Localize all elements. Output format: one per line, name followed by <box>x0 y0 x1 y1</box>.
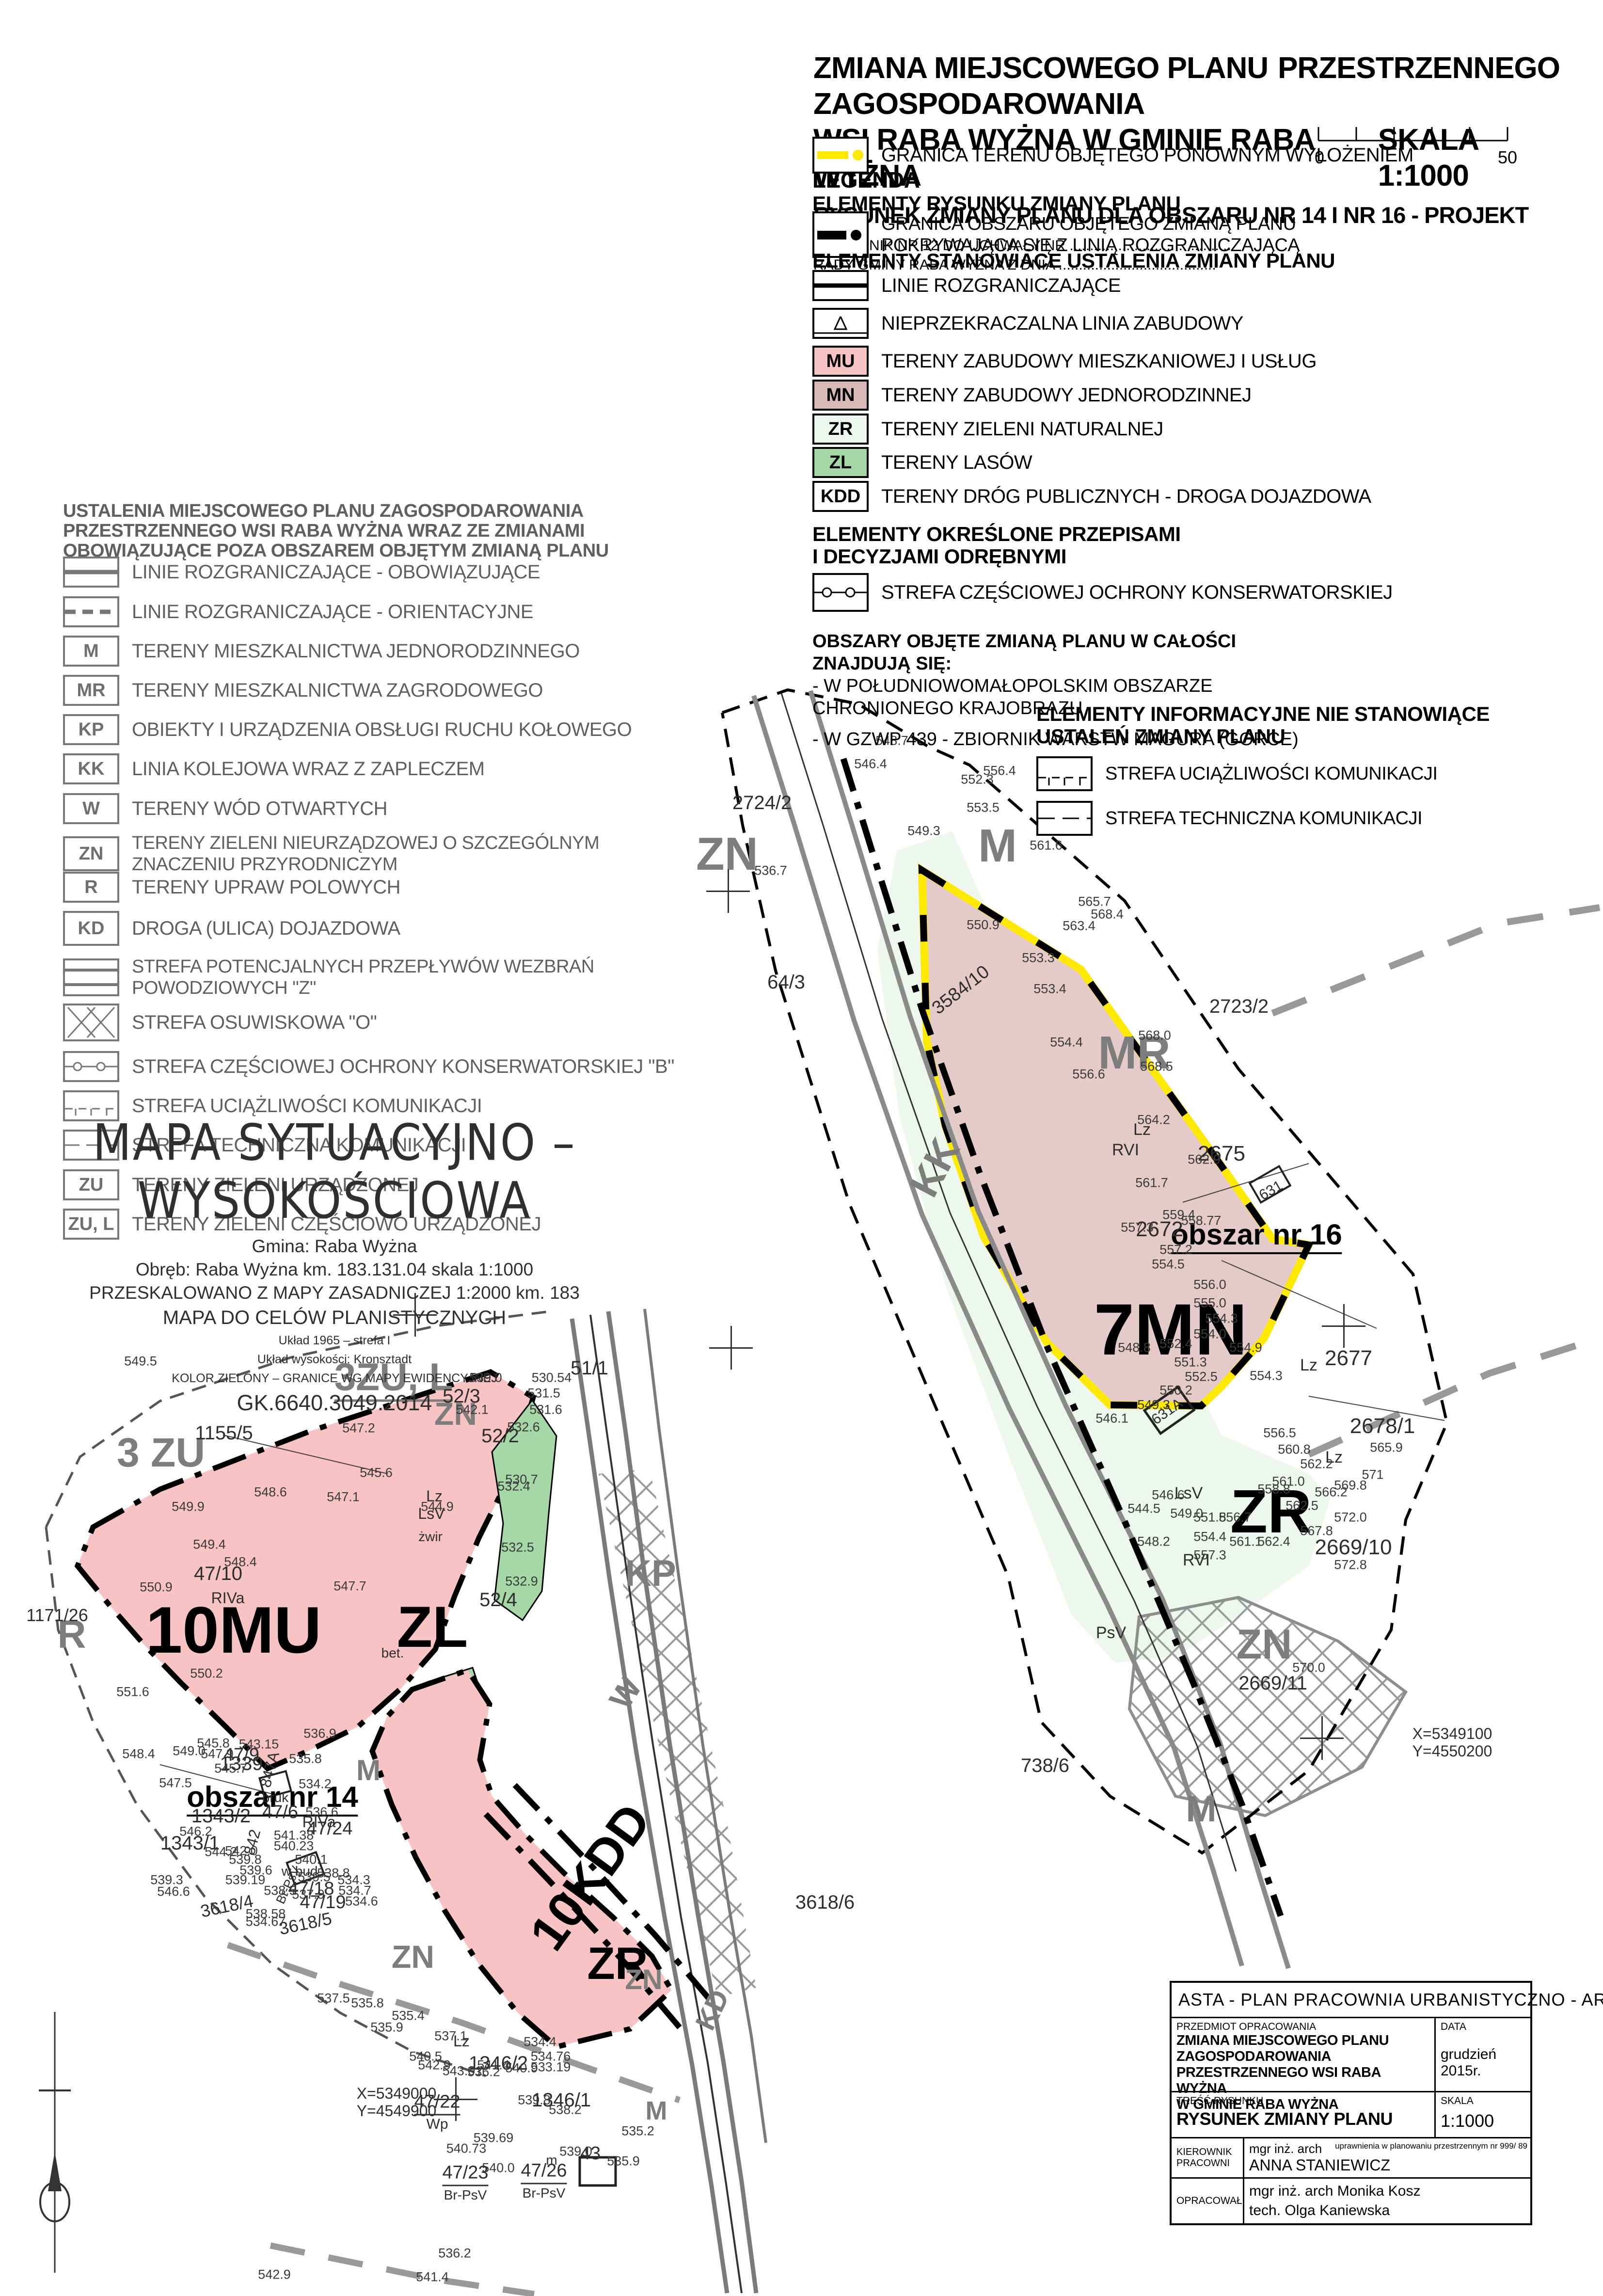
map-note-line: MAPA DO CELÓW PLANISTYCZNYCH <box>29 1307 640 1329</box>
legend-label-line: POWODZIOWYCH "Z" <box>132 977 594 999</box>
author-name-2: tech. Olga Kaniewska <box>1249 2201 1420 2220</box>
zl-swatch: ZL <box>812 447 869 478</box>
legend-label: STREFA OSUWISKOWA "O" <box>132 1012 377 1034</box>
legend-label: TERENY ZIELENI NIEURZĄDZOWEJ O SZCZEGÓLN… <box>132 832 599 875</box>
w-swatch: W <box>63 793 119 824</box>
legend-section-4: ELEMENTY INFORMACYJNE NIE STANOWIĄCE UST… <box>1036 703 1490 748</box>
legend-label: GRANICA TERENU OBJĘTEGO PONOWNYM WYŁOŻEN… <box>881 144 1413 166</box>
date-cell: DATA grudzień 2015r. <box>1436 2018 1527 2091</box>
legend-label: TERENY DRÓG PUBLICZNYCH - DROGA DOJAZDOW… <box>881 486 1371 508</box>
legend-label: TERENY WÓD OTWARTYCH <box>132 798 387 820</box>
manager-label: KIEROWNIK PRACOWNI <box>1172 2138 1244 2177</box>
legend-label: LINIE ROZGRANICZAJĄCE - OBOWIĄZUJĄCE <box>132 561 540 583</box>
zone-code: R <box>84 877 97 898</box>
cell-label: PRZEDMIOT OPRACOWANIA <box>1176 2021 1429 2033</box>
crosshatch-swatch <box>63 1004 119 1041</box>
title-block-manager-row: KIEROWNIK PRACOWNI mgr inż. arch ANNA ST… <box>1172 2137 1530 2177</box>
strefa-osuwiskowa-hatch <box>1129 1597 1406 1816</box>
kdd-swatch: KDD <box>812 481 869 512</box>
manager-name: ANNA STANIEWICZ <box>1249 2156 1525 2174</box>
legend-label: LINIE ROZGRANICZAJĄCE - ORIENTACYJNE <box>132 601 533 623</box>
map-note-title: MAPA SYTUACYJNO – WYSOKOŚCIOWA <box>29 1114 640 1230</box>
building <box>580 2157 616 2185</box>
thick-line-swatch <box>812 270 869 301</box>
legend-label: LINIA KOLEJOWA WRAZ Z ZAPLECZEM <box>132 758 485 780</box>
map-area-16 <box>722 690 1600 1968</box>
subject-line: ZMIANA MIEJSCOWEGO PLANU ZAGOSPODAROWANI… <box>1176 2033 1429 2065</box>
left-legend-header-line: USTALENIA MIEJSCOWEGO PLANU ZAGOSPODAROW… <box>63 501 609 521</box>
manager-cell: mgr inż. arch ANNA STANIEWICZ uprawnieni… <box>1244 2138 1530 2177</box>
zone-code: W <box>82 798 100 819</box>
note-line: OBSZARY OBJĘTE ZMIANĄ PLANU W CAŁOŚCI <box>812 630 1299 653</box>
legend-strefa-konserwatorska: STREFA CZĘŚCIOWEJ OCHRONY KONSERWATORSKI… <box>812 573 1393 612</box>
zone-code: KDD <box>821 486 860 507</box>
title-block-subject-row: PRZEDMIOT OPRACOWANIA ZMIANA MIEJSCOWEGO… <box>1172 2017 1530 2091</box>
map-note-line: Układ 1965 – strefa I <box>29 1334 640 1348</box>
cell-label: DATA <box>1441 2021 1522 2033</box>
legend-label: STREFA TECHNICZNA KOMUNIKACJI <box>1105 808 1422 829</box>
zone-code: ZN <box>79 844 104 864</box>
title-block-company-row: ASTA - PLAN PRACOWNIA URBANISTYCZNO - AR… <box>1172 1983 1530 2017</box>
map-source-note: MAPA SYTUACYJNO – WYSOKOŚCIOWA Gmina: Ra… <box>29 1120 640 1416</box>
legend-label: DROGA (ULICA) DOJAZDOWA <box>132 918 400 940</box>
legend-linia-zabudowy: NIEPRZEKRACZALNA LINIA ZABUDOWY <box>812 308 1243 339</box>
setback-line-swatch <box>812 308 869 339</box>
legend-section-line: I DECYZJAMI ODRĘBNYMI <box>812 545 1181 568</box>
parcel-line <box>160 1765 271 1794</box>
long-dash-swatch <box>1036 801 1093 836</box>
ll-kk: KK LINIA KOLEJOWA WRAZ Z ZAPLECZEM <box>63 753 485 784</box>
ll-w: W TERENY WÓD OTWARTYCH <box>63 793 387 824</box>
ll-kd: KD DROGA (ULICA) DOJAZDOWA <box>63 911 400 946</box>
legend-section-3: ELEMENTY OKREŚLONE PRZEPISAMI I DECYZJAM… <box>812 523 1181 568</box>
zn-swatch: ZN <box>63 836 119 871</box>
license-note: uprawnienia w planowaniu przestrzennym n… <box>1335 2141 1527 2151</box>
ll-zn: ZN TERENY ZIELENI NIEURZĄDZOWEJ O SZCZEG… <box>63 832 599 875</box>
legend-section-line: ELEMENTY INFORMACYJNE NIE STANOWIĄCE <box>1036 703 1490 725</box>
legend-label: OBIEKTY I URZĄDZENIA OBSŁUGI RUCHU KOŁOW… <box>132 719 632 741</box>
legend-label: STREFA POTENCJALNYCH PRZEPŁYWÓW WEZBRAŃ … <box>132 956 594 999</box>
legend-label: NIEPRZEKRACZALNA LINIA ZABUDOWY <box>881 313 1243 335</box>
ll-m: M TERENY MIESZKALNICTWA JEDNORODZINNEGO <box>63 636 580 667</box>
ll-r: R TERENY UPRAW POLOWYCH <box>63 872 400 903</box>
author-cell: mgr inż. arch Monika Kosz tech. Olga Kan… <box>1244 2179 1425 2223</box>
kd-swatch: KD <box>63 911 119 946</box>
legend-section-2: ELEMENTY STANOWIACE USTALENIA ZMIANY PLA… <box>812 249 1335 272</box>
zone-code: ZL <box>829 452 852 473</box>
title-block: ASTA - PLAN PRACOWNIA URBANISTYCZNO - AR… <box>1170 1981 1532 2225</box>
drawing-content-value: RYSUNEK ZMIANY PLANU <box>1176 2111 1429 2127</box>
title-block-author-row: OPRACOWAŁ: mgr inż. arch Monika Kosz tec… <box>1172 2177 1530 2223</box>
cell-label: TREŚĆ RYSUNKU <box>1176 2095 1429 2107</box>
legend-label: STREFA CZĘŚCIOWEJ OCHRONY KONSERWATORSKI… <box>881 582 1393 604</box>
legend-label-line: STREFA POTENCJALNYCH PRZEPŁYWÓW WEZBRAŃ <box>132 956 594 977</box>
legend-linie-rozgraniczajace: LINIE ROZGRANICZAJĄCE <box>812 270 1121 301</box>
subject-cell: PRZEDMIOT OPRACOWANIA ZMIANA MIEJSCOWEGO… <box>1172 2018 1436 2091</box>
map-note-ref-number: GK.6640.3049.2014 <box>29 1390 640 1416</box>
kp-swatch: KP <box>63 714 119 745</box>
zone-code: MU <box>826 351 855 372</box>
legend-label: TERENY ZABUDOWY MIESZKANIOWEJ I USŁUG <box>881 351 1317 372</box>
left-legend-header-line: PRZESTRZENNEGO WSI RABA WYŻNA WRAZ ZE ZM… <box>63 521 609 541</box>
legend-zr: ZR TERENY ZIELENI NATURALNEJ <box>812 414 1163 445</box>
mn-swatch: MN <box>812 380 869 411</box>
zone-code: ZR <box>828 419 853 440</box>
map-note-line: Układ wysokości: Kronsztadt <box>29 1353 640 1367</box>
strefa-techniczna-line-1 <box>1272 908 1600 1013</box>
strefa-techniczna-line-3 <box>270 2246 534 2294</box>
zone-code: M <box>83 641 99 662</box>
ticks-dash-swatch <box>1036 756 1093 791</box>
w-corridor-hatch <box>599 1469 756 1997</box>
double-line-swatch <box>63 958 119 996</box>
legend-label-line: GRANICA OBSZARU OBJĘTEGO ZMIANĄ PLANU <box>881 213 1300 235</box>
ll-konserw-b: STREFA CZĘŚCIOWEJ OCHRONY KONSERWATORSKI… <box>63 1051 674 1082</box>
drawing-content-cell: TREŚĆ RYSUNKU RYSUNEK ZMIANY PLANU <box>1172 2092 1436 2137</box>
plan-sheet: ZNMMRKK7MNobszar nr 16ZRZNMRVIRVILzLzLzL… <box>0 0 1603 2296</box>
building <box>260 1771 291 1798</box>
m-swatch: M <box>63 636 119 667</box>
legend-mu: MU TERENY ZABUDOWY MIESZKANIOWEJ I USŁUG <box>812 346 1317 377</box>
ll-linie-obowiazujace: LINIE ROZGRANICZAJĄCE - OBOWIĄZUJĄCE <box>63 557 540 588</box>
scale-end-label: 50 <box>1498 147 1517 168</box>
legend-zl: ZL TERENY LASÓW <box>812 447 1032 478</box>
map-note-line: Gmina: Raba Wyżna <box>29 1236 640 1257</box>
mu-swatch: MU <box>812 346 869 377</box>
map-area-14 <box>39 1309 766 2294</box>
zr-swatch: ZR <box>812 414 869 445</box>
map-note-line: Obręb: Raba Wyżna km. 183.131.04 skala 1… <box>29 1260 640 1280</box>
circle-line-swatch <box>812 573 869 612</box>
legend-section-line: USTALEŃ ZMIANY PLANU <box>1036 725 1490 748</box>
zone-code: MR <box>77 680 105 701</box>
legend-label: TERENY UPRAW POLOWYCH <box>132 877 400 898</box>
legend-label: TERENY MIESZKALNICTWA JEDNORODZINNEGO <box>132 640 580 662</box>
legend-mn: MN TERENY ZABUDOWY JEDNORODZINNEJ <box>812 380 1252 411</box>
map-note-line: PRZESKALOWANO Z MAPY ZASADNICZEJ 1:2000 … <box>29 1283 640 1303</box>
author-name-1: mgr inż. arch Monika Kosz <box>1249 2182 1420 2201</box>
circle-line-swatch-gray <box>63 1051 119 1082</box>
legend-section-line: ELEMENTY OKREŚLONE PRZEPISAMI <box>812 523 1181 545</box>
title-text: ZMIANA MIEJSCOWEGO PLANU ZAGOSPODAROWANI… <box>813 50 1278 122</box>
r-swatch: R <box>63 872 119 903</box>
scale-value: 1:1000 <box>1441 2111 1522 2131</box>
title-text-right: PRZESTRZENNEGO <box>1278 50 1560 122</box>
note-line: ZNAJDUJĄ SIĘ: <box>812 653 1299 675</box>
note-line: - W POŁUDNIOWOMAŁOPOLSKIM OBSZARZE <box>812 675 1299 697</box>
zone-code: KP <box>79 719 104 740</box>
legend-label: TERENY LASÓW <box>881 452 1032 474</box>
title-line-1: ZMIANA MIEJSCOWEGO PLANU ZAGOSPODAROWANI… <box>813 50 1560 122</box>
zone-code: KK <box>78 759 105 780</box>
left-legend-header: USTALENIA MIEJSCOWEGO PLANU ZAGOSPODAROW… <box>63 501 609 561</box>
legend-label: TERENY ZIELENI NATURALNEJ <box>881 418 1163 440</box>
date-value: grudzień 2015r. <box>1441 2046 1522 2079</box>
legend-strefa-uciazliwosci: STREFA UCIĄŻLIWOŚCI KOMUNIKACJI <box>1036 756 1437 791</box>
legend-title: LEGENDA <box>812 167 920 193</box>
gray-line-swatch <box>63 557 119 588</box>
ll-osuwisko: STREFA OSUWISKOWA "O" <box>63 1004 377 1041</box>
zone-code: KD <box>78 918 105 939</box>
legend-label: LINIE ROZGRANICZAJĄCE <box>881 275 1121 297</box>
legend-label: TERENY MIESZKALNICTWA ZAGRODOWEGO <box>132 680 543 702</box>
ll-kp: KP OBIEKTY I URZĄDZENIA OBSŁUGI RUCHU KO… <box>63 714 632 745</box>
legend-label: STREFA CZĘŚCIOWEJ OCHRONY KONSERWATORSKI… <box>132 1056 674 1078</box>
ll-linie-orientacyjne: LINIE ROZGRANICZAJĄCE - ORIENTACYJNE <box>63 596 533 627</box>
map-note-line: KOLOR ZIELONY – GRANICE WG MAPY EWIDENCY… <box>29 1371 640 1386</box>
building <box>1250 1166 1290 1203</box>
legend-label-line: TERENY ZIELENI NIEURZĄDZOWEJ O SZCZEGÓLN… <box>132 832 599 854</box>
legend-label: STREFA UCIĄŻLIWOŚCI KOMUNIKACJI <box>1105 764 1437 784</box>
building <box>287 1852 324 1885</box>
north-arrow <box>39 2012 71 2273</box>
ll-mr: MR TERENY MIESZKALNICTWA ZAGRODOWEGO <box>63 675 543 706</box>
gray-dashed-swatch <box>63 596 119 627</box>
company-name: ASTA - PLAN PRACOWNIA URBANISTYCZNO - AR… <box>1172 1983 1603 2017</box>
zone-code: MN <box>826 385 855 406</box>
ll-wezbrania: STREFA POTENCJALNYCH PRZEPŁYWÓW WEZBRAŃ … <box>63 956 594 999</box>
legend-label: TERENY ZABUDOWY JEDNORODZINNEJ <box>881 384 1252 406</box>
author-label: OPRACOWAŁ: <box>1172 2179 1244 2223</box>
legend-strefa-techniczna: STREFA TECHNICZNA KOMUNIKACJI <box>1036 801 1422 836</box>
legend-kdd: KDD TERENY DRÓG PUBLICZNYCH - DROGA DOJA… <box>812 481 1371 512</box>
cell-label: SKALA <box>1441 2095 1522 2107</box>
kk-swatch: KK <box>63 753 119 784</box>
title-block-content-row: TREŚĆ RYSUNKU RYSUNEK ZMIANY PLANU SKALA… <box>1172 2091 1530 2137</box>
strefa-techniczna-line-2 <box>1309 1338 1600 1454</box>
mr-swatch: MR <box>63 675 119 706</box>
scale-cell: SKALA 1:1000 <box>1436 2092 1527 2137</box>
